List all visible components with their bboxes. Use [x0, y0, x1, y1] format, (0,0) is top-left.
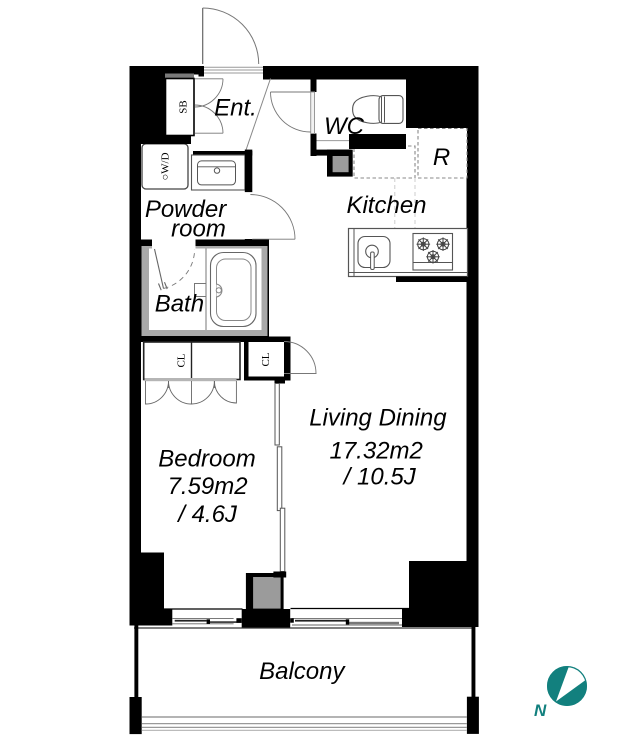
svg-text:17.32m2: 17.32m2: [329, 438, 422, 465]
svg-text:Bedroom: Bedroom: [158, 445, 255, 472]
svg-text:Ent.: Ent.: [214, 95, 257, 122]
svg-text:Bath: Bath: [155, 290, 204, 317]
svg-text:/ 4.6J: / 4.6J: [176, 501, 238, 528]
svg-text:N: N: [534, 701, 547, 720]
svg-text:WC: WC: [324, 113, 365, 140]
svg-text:Kitchen: Kitchen: [346, 192, 426, 219]
svg-text:7.59m2: 7.59m2: [168, 473, 248, 500]
svg-text:CL: CL: [260, 352, 272, 366]
svg-text:Living Dining: Living Dining: [309, 404, 447, 431]
svg-text:○W/D: ○W/D: [160, 152, 172, 180]
svg-text:/ 10.5J: / 10.5J: [342, 464, 417, 491]
svg-text:SB: SB: [178, 100, 190, 113]
svg-text:Balcony: Balcony: [259, 658, 346, 685]
svg-text:CL: CL: [176, 353, 188, 367]
svg-text:room: room: [171, 216, 226, 243]
svg-text:R: R: [433, 144, 450, 171]
